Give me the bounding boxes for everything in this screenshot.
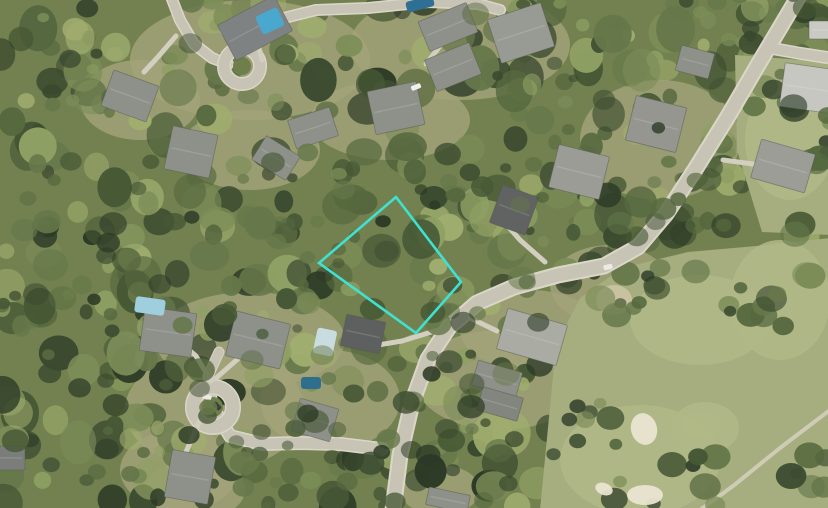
swimming-pool [301, 377, 321, 389]
aerial-photo [0, 0, 828, 508]
house [164, 126, 218, 179]
house [164, 450, 216, 505]
golf-light-patch [682, 411, 722, 439]
sand-bunker [627, 485, 663, 505]
aerial-map-view [0, 0, 828, 508]
house [809, 21, 828, 39]
